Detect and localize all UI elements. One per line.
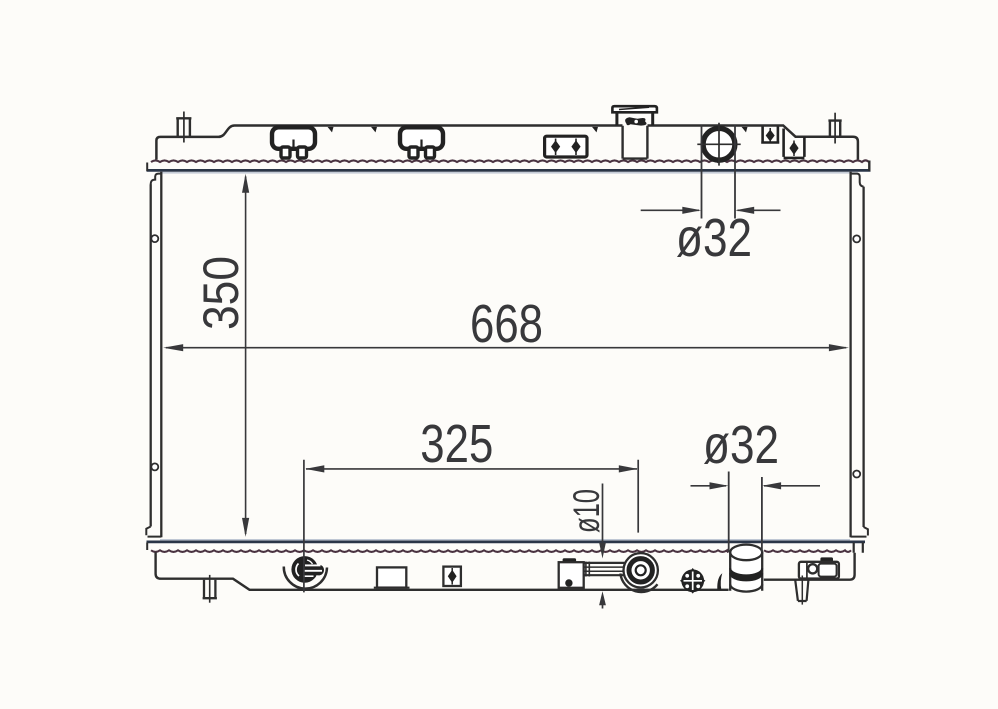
svg-text:ø32: ø32 (703, 415, 779, 475)
svg-text:325: 325 (420, 414, 493, 474)
svg-text:ø10: ø10 (566, 489, 607, 533)
svg-text:350: 350 (193, 256, 249, 330)
svg-text:668: 668 (470, 294, 543, 354)
svg-text:ø32: ø32 (676, 208, 752, 268)
